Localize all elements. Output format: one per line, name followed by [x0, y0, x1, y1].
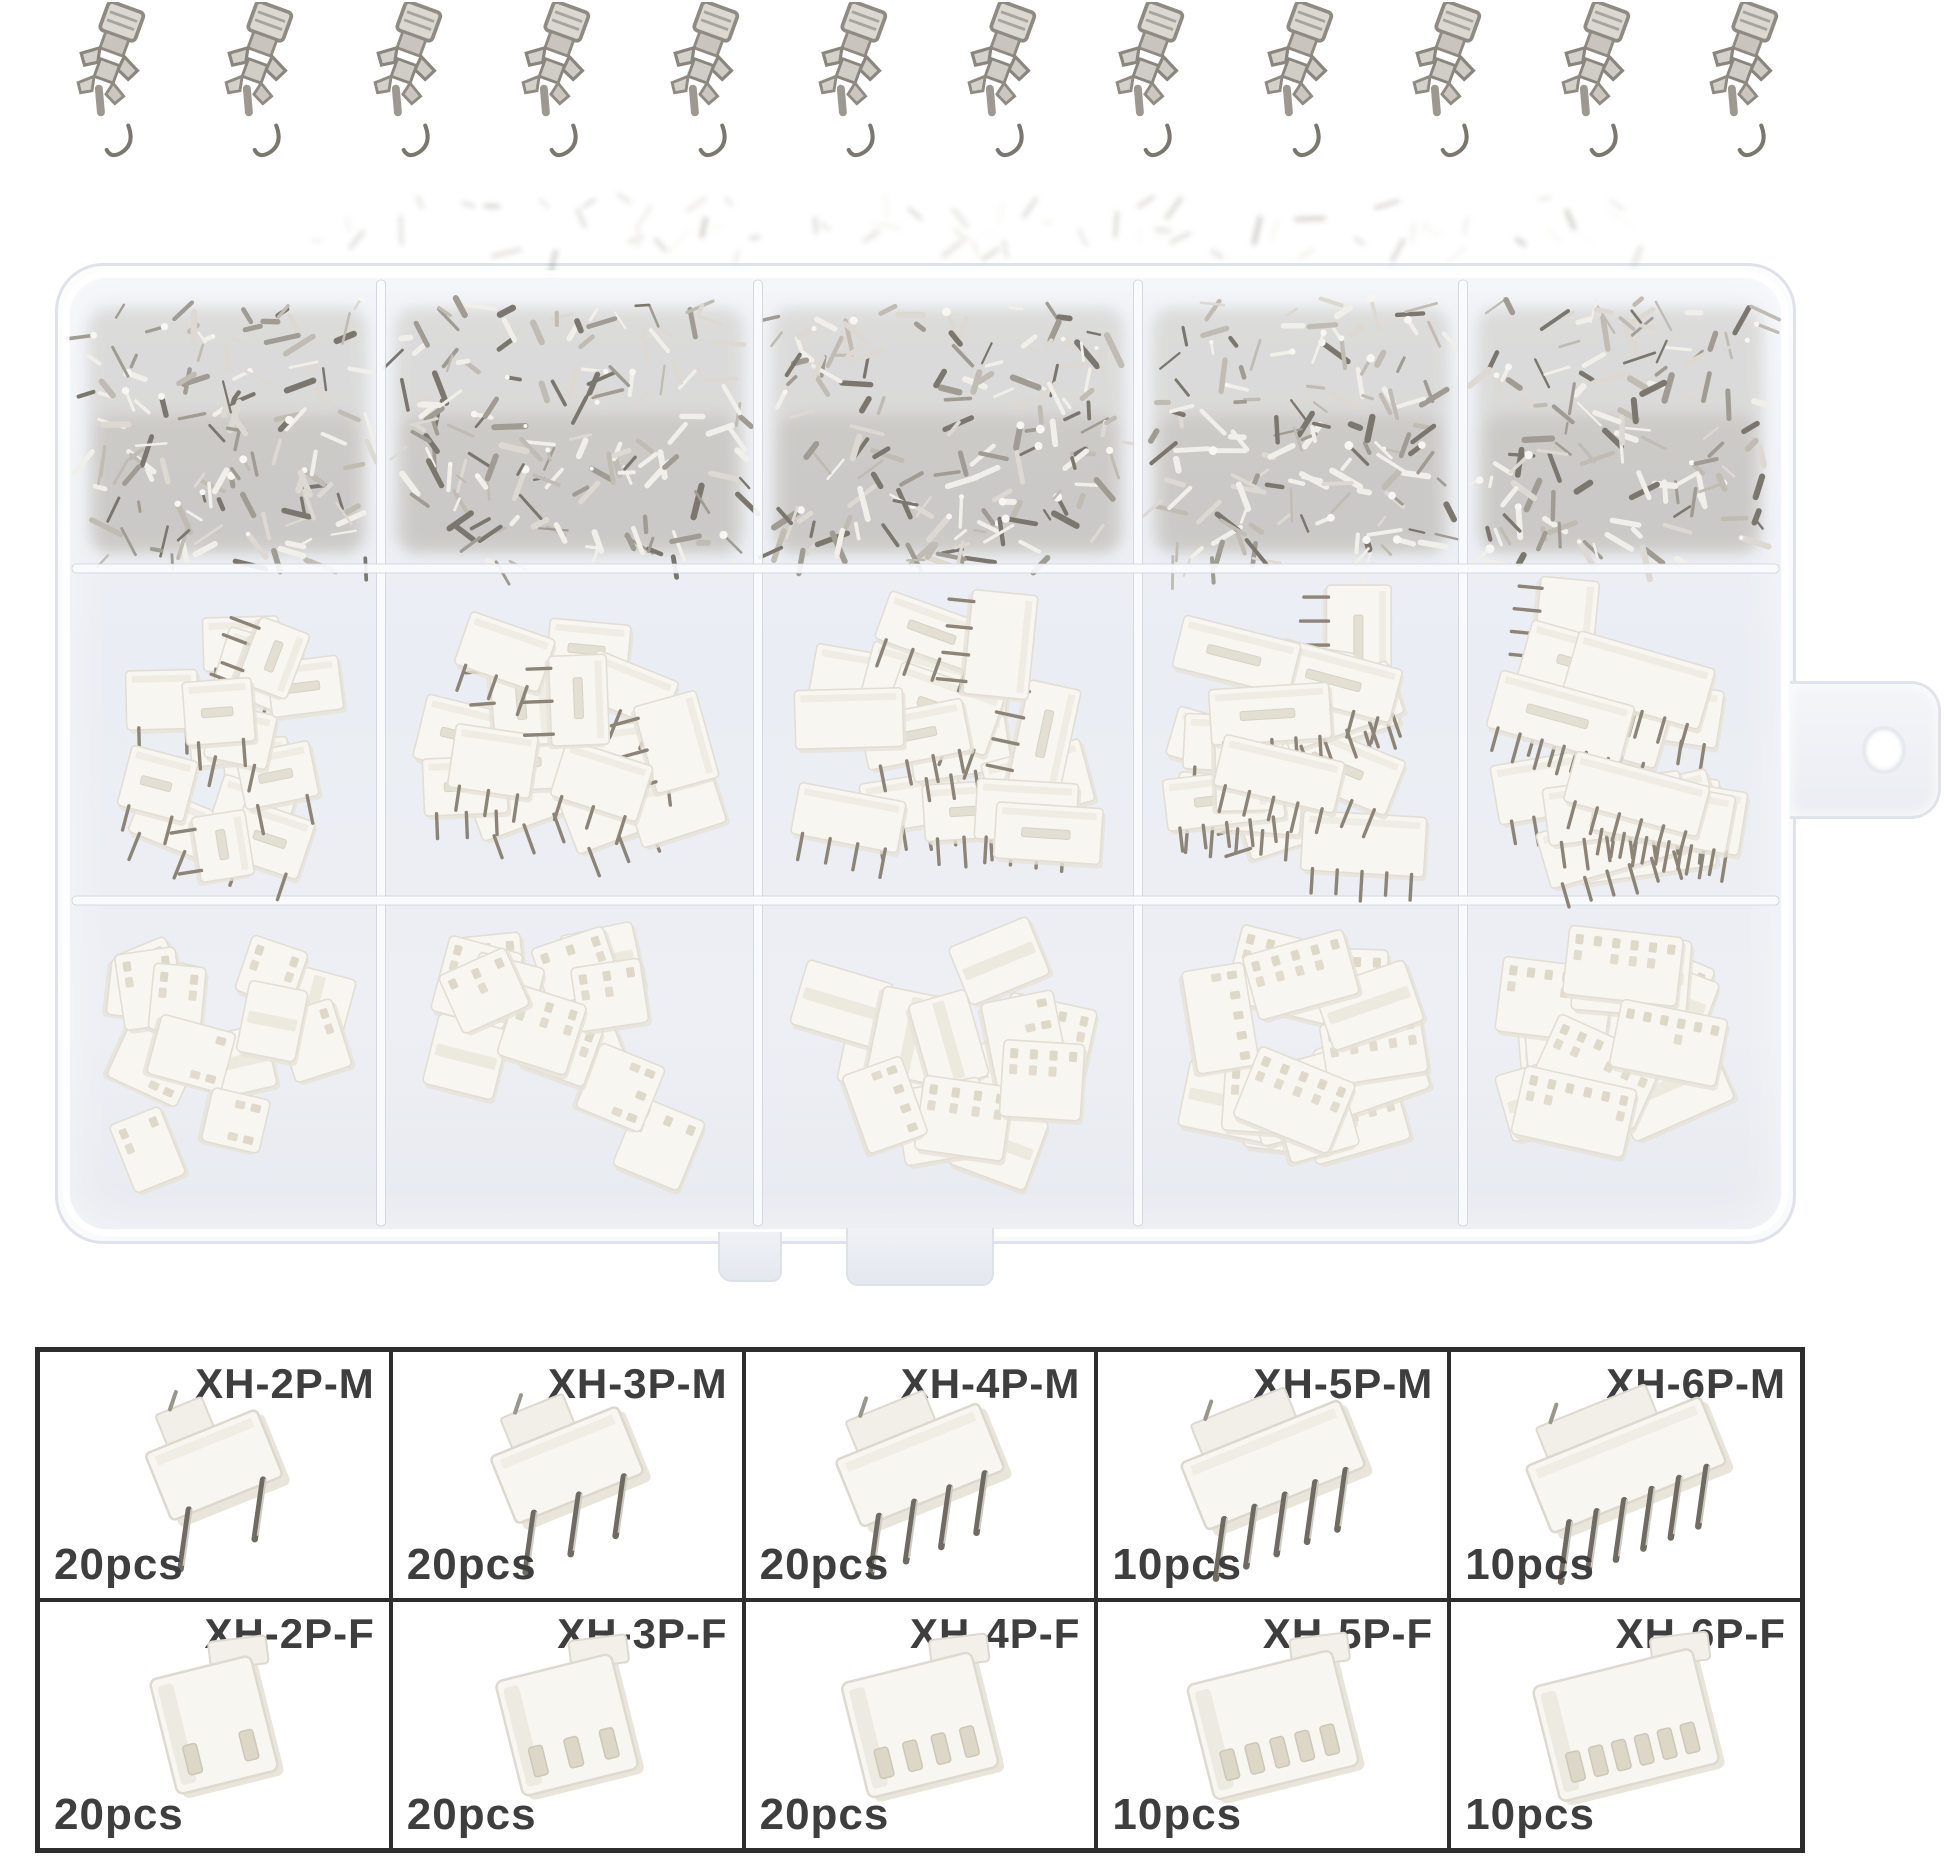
female-housing-illustration — [490, 1627, 660, 1802]
box-latch — [846, 1228, 994, 1286]
female-housing-illustration — [836, 1626, 1020, 1804]
crimp-terminal-icon — [1688, 2, 1800, 160]
crimp-terminal-icon — [1094, 2, 1206, 160]
terminal-pile — [1463, 299, 1779, 579]
male-header-pile — [785, 587, 1106, 880]
male-header-pile — [110, 606, 347, 905]
grid-cell-xh-3p-m: XH-3P-M 20pcs — [393, 1352, 742, 1598]
piece-count: 20pcs — [760, 1540, 890, 1590]
crimp-terminal-icon — [55, 2, 167, 160]
female-housing-pile — [101, 934, 357, 1197]
piece-count: 20pcs — [54, 1790, 184, 1840]
terminal-pile — [384, 298, 758, 584]
hang-hole — [1864, 728, 1904, 772]
female-housing-illustration — [1527, 1624, 1740, 1807]
grid-cell-xh-2p-f: XH-2P-F 20pcs — [40, 1602, 389, 1848]
male-header-pile — [1479, 574, 1751, 916]
organizer-box — [55, 263, 1796, 1244]
female-housing-pile — [421, 920, 709, 1196]
terminal-pile — [1144, 294, 1465, 588]
crimp-terminal-icon — [203, 2, 315, 160]
spec-grid: XH-2P-M 20pcs XH-3P-M 20pcs XH-4P-M 20pc… — [35, 1347, 1805, 1853]
crimp-terminal-icon — [1391, 2, 1503, 160]
grid-cell-xh-2p-m: XH-2P-M 20pcs — [40, 1352, 389, 1598]
crimp-terminal-icon — [797, 2, 909, 160]
female-housing-pile — [1177, 924, 1436, 1169]
crimp-terminal-icon — [352, 2, 464, 160]
crimp-terminal-icon — [946, 2, 1058, 160]
crimp-terminal-icon — [649, 2, 761, 160]
male-header-illustration — [119, 1365, 306, 1569]
male-header-pile — [1162, 585, 1430, 905]
piece-count: 20pcs — [54, 1540, 184, 1590]
female-housing-pile — [788, 915, 1100, 1196]
piece-count: 20pcs — [760, 1790, 890, 1840]
box-compartments — [58, 266, 1793, 1241]
piece-count: 20pcs — [407, 1790, 537, 1840]
female-housing-illustration — [144, 1628, 300, 1800]
grid-cell-xh-5p-f: XH-5P-F 10pcs — [1098, 1602, 1447, 1848]
crimp-terminal-icon — [500, 2, 612, 160]
hang-tab — [1790, 681, 1941, 819]
female-housing-pile — [1494, 925, 1739, 1163]
male-header-pile — [411, 611, 730, 880]
grid-cell-xh-3p-f: XH-3P-F 20pcs — [393, 1602, 742, 1848]
terminal-overflow-haze — [312, 195, 1641, 274]
grid-cell-xh-6p-m: XH-6P-M 10pcs — [1451, 1352, 1800, 1598]
piece-count: 10pcs — [1112, 1540, 1242, 1590]
grid-cell-xh-5p-m: XH-5P-M 10pcs — [1098, 1352, 1447, 1598]
terminal-pile — [67, 295, 380, 580]
box-latch — [718, 1232, 782, 1282]
piece-count: 20pcs — [407, 1540, 537, 1590]
piece-count: 10pcs — [1465, 1540, 1595, 1590]
piece-count: 10pcs — [1465, 1790, 1595, 1840]
crimp-terminal-icon — [1243, 2, 1355, 160]
terminal-pile — [760, 303, 1137, 573]
piece-count: 10pcs — [1112, 1790, 1242, 1840]
loose-terminal-row — [55, 2, 1800, 164]
grid-cell-xh-6p-f: XH-6P-F 10pcs — [1451, 1602, 1800, 1848]
crimp-terminal-icon — [1540, 2, 1652, 160]
grid-cell-xh-4p-m: XH-4P-M 20pcs — [746, 1352, 1095, 1598]
female-housing-illustration — [1181, 1625, 1379, 1806]
grid-cell-xh-4p-f: XH-4P-F 20pcs — [746, 1602, 1095, 1848]
